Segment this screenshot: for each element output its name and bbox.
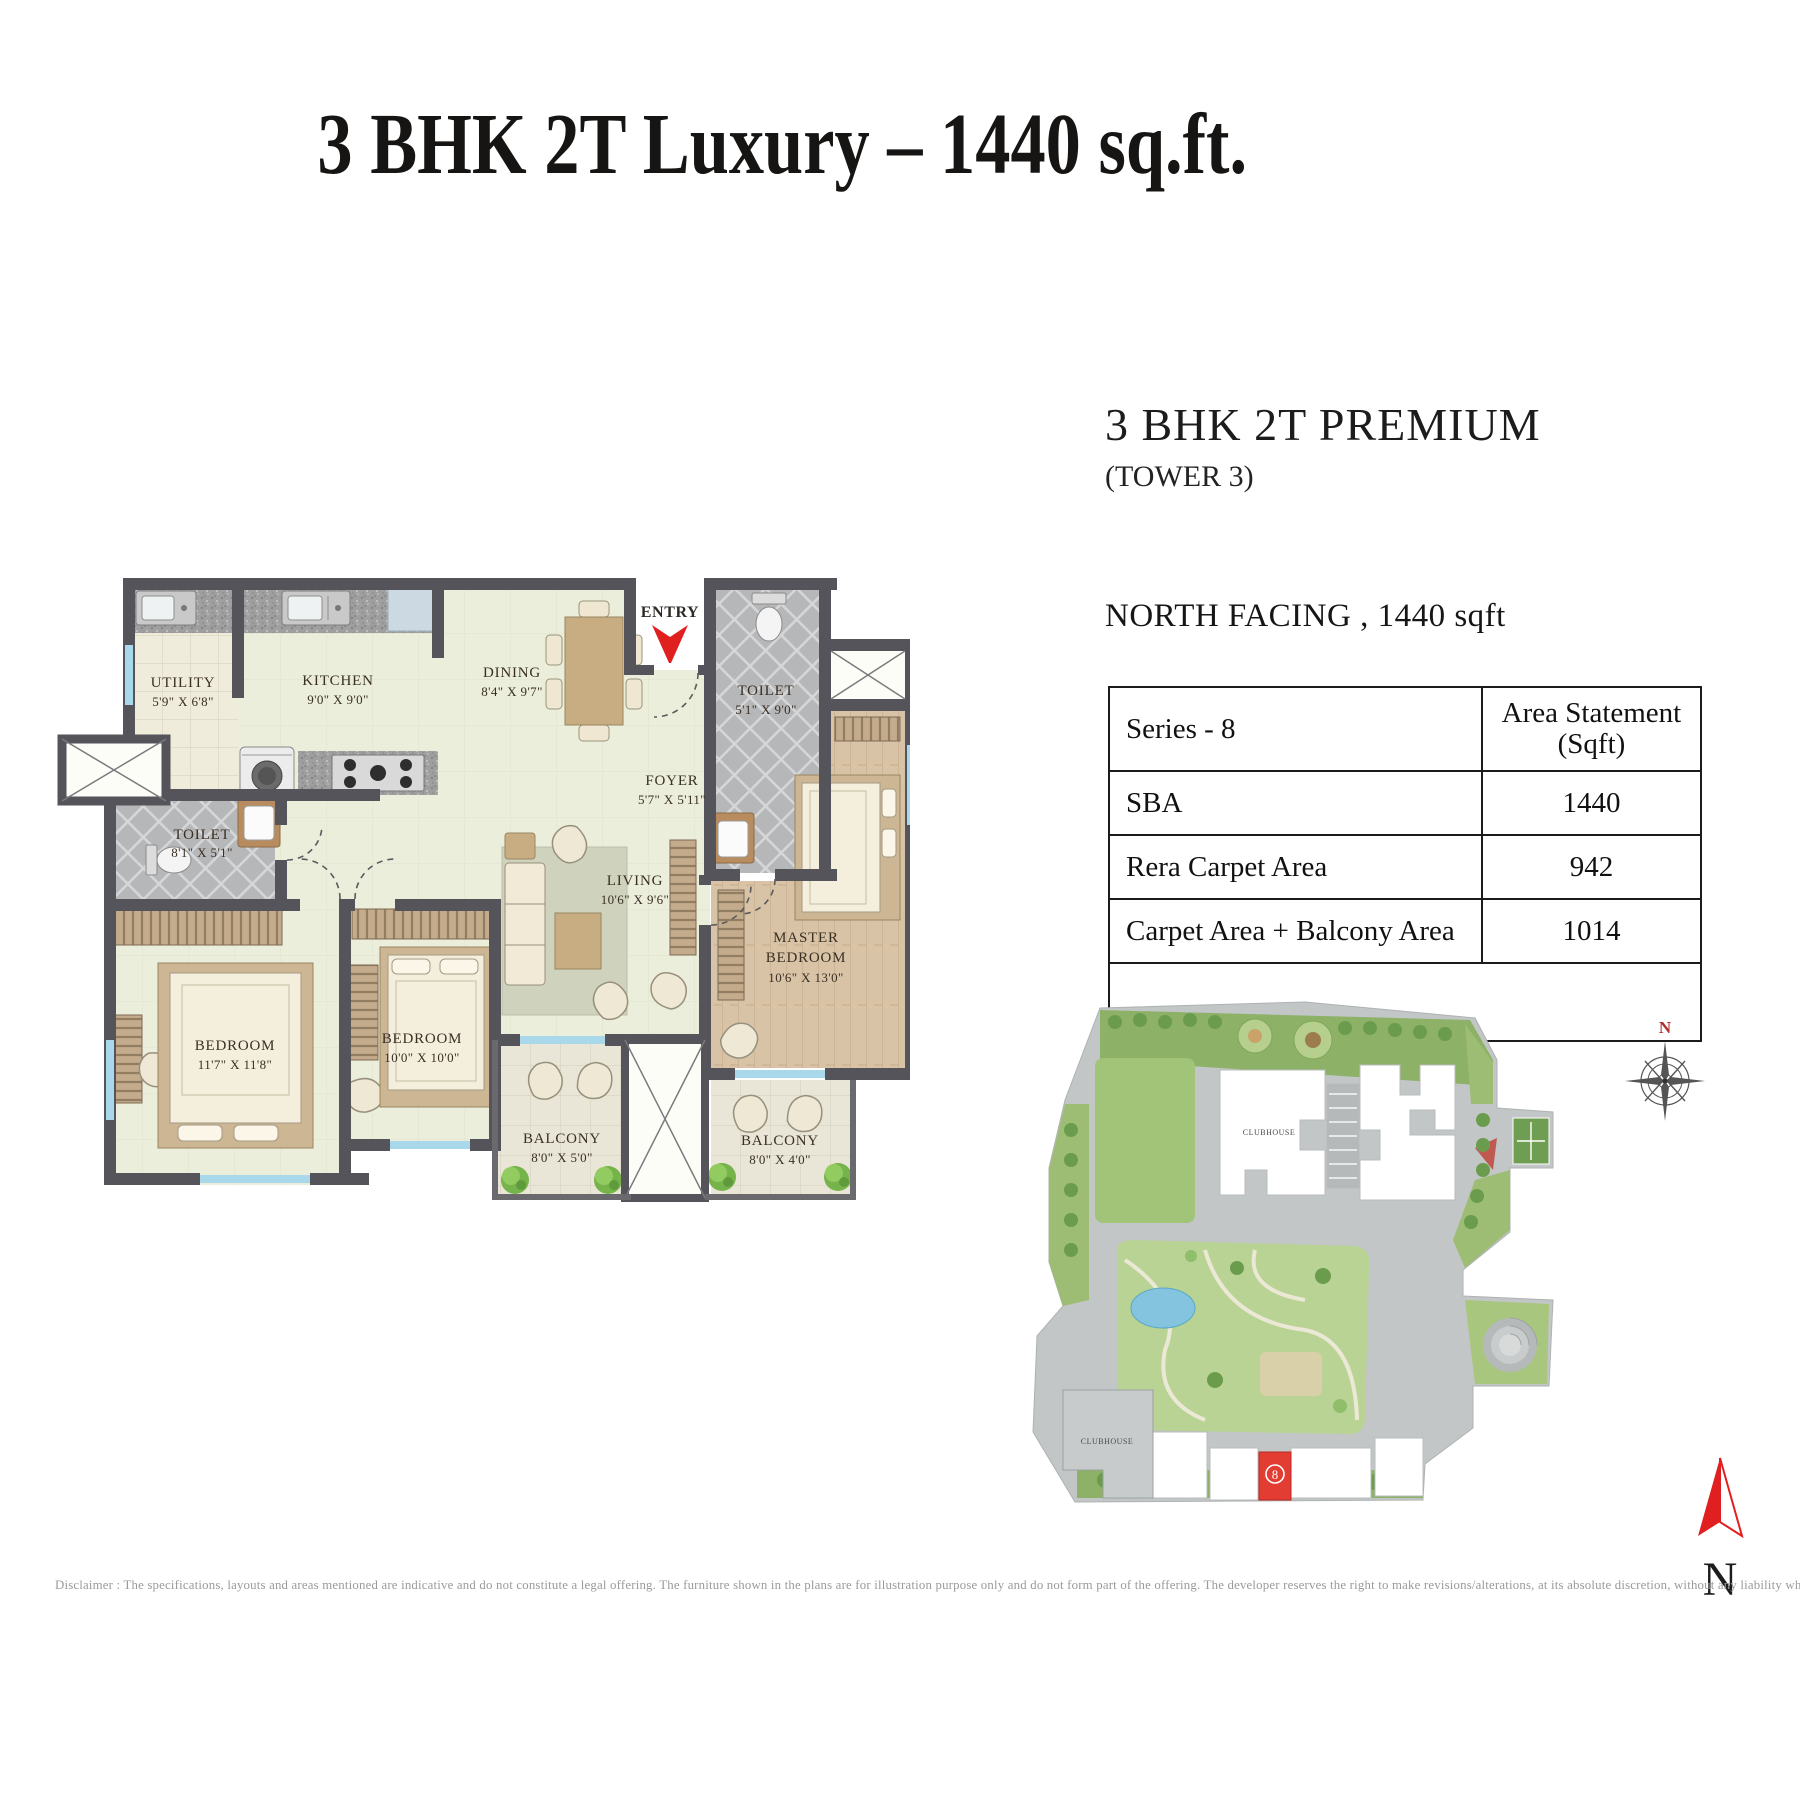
clubhouse-top-label: CLUBHOUSE [1243,1128,1296,1137]
svg-text:9'0" X 9'0": 9'0" X 9'0" [307,692,369,707]
wardrobe [835,717,900,741]
svg-text:10'6" X 9'6": 10'6" X 9'6" [601,892,670,907]
page: 3 BHK 2T Luxury – 1440 sq.ft. 3 BHK 2T P… [0,0,1800,1800]
room-label-toilet-top: TOILET [737,683,794,699]
room-label-living: LIVING [607,873,663,889]
entry-arrow-icon [652,625,688,663]
central-park [1117,1240,1369,1434]
disclaimer-text: Disclaimer : The specifications, layouts… [55,1578,1755,1593]
room-label-foyer: FOYER [645,773,698,789]
room-label-bedroom1: BEDROOM [195,1038,276,1054]
site-map: 8 CLUBHOUSE CLUBHOUSE [1005,1000,1565,1535]
svg-text:5'9" X 6'8": 5'9" X 6'8" [152,694,214,709]
bed [380,947,492,1107]
table-row: Carpet Area + Balcony Area 1014 [1109,899,1701,963]
desk [350,965,378,1060]
room-label-balcony-right: BALCONY [741,1133,819,1149]
svg-text:5'1" X 9'0": 5'1" X 9'0" [735,702,797,717]
table-row: SBA 1440 [1109,771,1701,835]
room-label-toilet-left: TOILET [173,827,230,843]
tv-unit [670,840,696,955]
svg-text:5'7" X 5'11": 5'7" X 5'11" [638,792,706,807]
svg-text:8'4" X 9'7": 8'4" X 9'7" [481,684,543,699]
playground [1260,1352,1322,1396]
compass-n-label: N [1659,1018,1672,1037]
tower-number: 8 [1272,1467,1279,1482]
series-header: Series - 8 [1109,687,1482,771]
roundabout [1483,1318,1537,1372]
coffee-table [555,913,601,969]
room-label-bedroom2: BEDROOM [382,1031,463,1047]
table-row: Rera Carpet Area 942 [1109,835,1701,899]
svg-text:10'6" X 13'0": 10'6" X 13'0" [768,970,843,985]
dining-table [565,617,623,725]
table-header-row: Series - 8 Area Statement (Sqft) [1109,687,1701,771]
kitchen-sink [282,591,350,625]
stove [332,755,424,791]
toilet-bowl [756,607,782,641]
area-statement-header: Area Statement (Sqft) [1482,687,1701,771]
svg-text:BEDROOM: BEDROOM [766,950,847,966]
wardrobe [718,890,744,1000]
utility-sink [136,591,196,625]
svg-text:10'0" X 10'0": 10'0" X 10'0" [384,1050,459,1065]
room-label-dining: DINING [483,665,541,681]
wardrobe [352,909,490,939]
entry-label: ENTRY [641,604,699,621]
north-arrow-icon [1685,1452,1755,1547]
sofa [505,863,545,985]
bed [158,963,313,1148]
room-label-utility: UTILITY [151,675,216,691]
svg-text:8'0" X 4'0": 8'0" X 4'0" [749,1152,811,1167]
bed [795,775,900,920]
entry-marker: ENTRY [641,604,699,663]
room-label-balcony-left: BALCONY [523,1131,601,1147]
room-label-master: MASTER [773,930,839,946]
tower-subheading: (TOWER 3) [1105,460,1254,494]
fridge [388,587,434,631]
room-label-kitchen: KITCHEN [302,673,373,689]
floor-plan: ENTRY UTILITY 5'9" X 6'8" KITCHEN 9'0" X… [50,495,910,1210]
svg-text:8'1" X 5'1": 8'1" X 5'1" [171,845,233,860]
facing-line: NORTH FACING , 1440 sqft [1105,598,1506,635]
page-title: 3 BHK 2T Luxury – 1440 sq.ft. [0,100,1564,191]
wardrobe [112,909,282,945]
compass-rose-icon: N [1610,1015,1720,1135]
area-statement-table: Series - 8 Area Statement (Sqft) SBA 144… [1108,686,1702,1042]
highlighted-tower-8: 8 [1259,1452,1291,1500]
svg-text:8'0" X 5'0": 8'0" X 5'0" [531,1150,593,1165]
svg-text:11'7" X 11'8": 11'7" X 11'8" [198,1057,272,1072]
pond [1131,1288,1195,1328]
clubhouse-bottom-label: CLUBHOUSE [1081,1437,1134,1446]
unit-type-heading: 3 BHK 2T PREMIUM [1105,398,1541,451]
